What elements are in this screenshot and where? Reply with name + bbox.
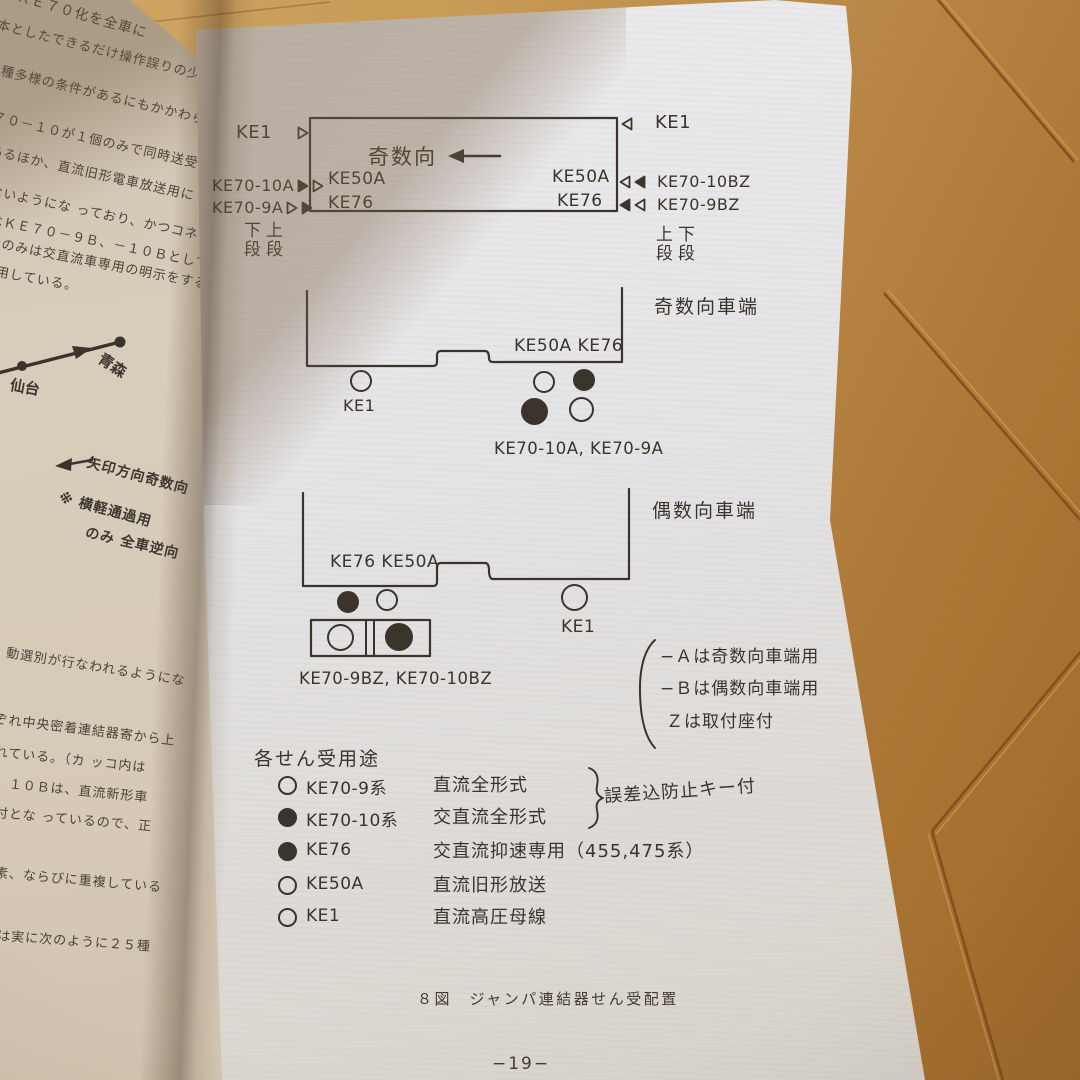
connector-label-ke1: KE1 bbox=[561, 617, 595, 637]
legend-name: KE70-10系 bbox=[306, 806, 398, 831]
legend-name: KE70-9系 bbox=[306, 774, 387, 799]
connector-row: KE70-10BZ bbox=[619, 172, 751, 191]
pin-triangle bbox=[634, 175, 646, 189]
connector-label: KE70-9BZ bbox=[657, 195, 740, 214]
suffix-note: −Ｂは偶数向車端用 bbox=[660, 674, 819, 699]
legend-desc: 交直流全形式 bbox=[433, 803, 547, 829]
note-arrowhead bbox=[55, 458, 72, 471]
odd-end-title: 奇数向車端 bbox=[654, 292, 759, 319]
legend-name: KE50A bbox=[306, 874, 364, 894]
legend-title: 各せん受用途 bbox=[254, 744, 380, 771]
route-arrowhead bbox=[72, 346, 92, 359]
legend-name: KE1 bbox=[306, 906, 340, 926]
legend-name: KE76 bbox=[306, 840, 352, 860]
tier-caption-line: 上下 bbox=[656, 226, 700, 245]
page-number: −19− bbox=[492, 1054, 550, 1074]
legend-pin bbox=[278, 808, 297, 827]
legend-pin bbox=[278, 776, 297, 795]
pin-circle bbox=[327, 624, 354, 651]
even-end-title: 偶数向車端 bbox=[652, 496, 757, 523]
connector-row: KE70-9BZ bbox=[619, 195, 740, 214]
tier-caption-right: 上下 段段 bbox=[656, 226, 700, 264]
notes-bracket bbox=[640, 640, 655, 748]
legend-desc: 直流高圧母線 bbox=[433, 903, 547, 929]
socket-label: KE76 KE50A bbox=[330, 552, 439, 572]
pin-circle bbox=[385, 623, 413, 651]
legend-pin bbox=[278, 908, 297, 927]
legend-desc: 交直流抑速専用（455,475系） bbox=[433, 837, 704, 863]
pin-circle bbox=[337, 591, 359, 613]
tier-caption-line: 段段 bbox=[656, 245, 700, 264]
pin-circle bbox=[561, 584, 588, 611]
connector-label-ke1: KE1 bbox=[655, 112, 691, 133]
pin-circle bbox=[376, 589, 398, 611]
legend-desc: 直流全形式 bbox=[433, 771, 528, 797]
legend-brace bbox=[589, 768, 603, 828]
suffix-note: Ｚは取付座付 bbox=[666, 707, 774, 732]
suffix-note: −Ａは奇数向車端用 bbox=[660, 642, 819, 667]
legend-pin bbox=[278, 876, 297, 895]
photo-canvas: ＫＥ７０化を全車に 本としたできるだけ操作誤りの少ない 多種多様の条件があるにも… bbox=[0, 0, 1080, 1080]
figure-caption: ８図 ジャンパ連結器せん受配置 bbox=[417, 988, 679, 1009]
pin-triangle bbox=[634, 198, 646, 212]
legend-desc: 直流旧形放送 bbox=[433, 871, 547, 897]
legend-pin bbox=[278, 842, 297, 861]
pin-group-label: KE70-9BZ, KE70-10BZ bbox=[299, 669, 492, 688]
connector-label: KE70-10BZ bbox=[657, 172, 751, 191]
